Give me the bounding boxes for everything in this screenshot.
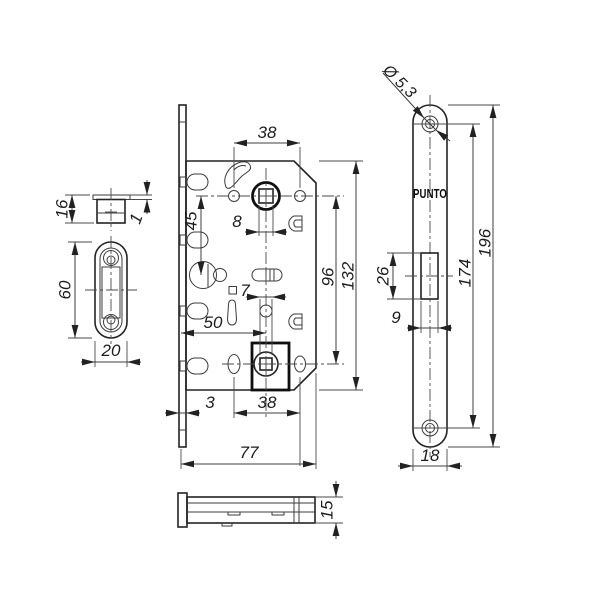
staple-tab-bottom bbox=[289, 314, 302, 329]
dim-label-8: 8 bbox=[232, 212, 242, 231]
dim-backset: 50 bbox=[181, 313, 266, 333]
dim-top-hole-span: 38 bbox=[234, 123, 300, 188]
dim-label-18: 18 bbox=[421, 446, 440, 465]
dim-label-60: 60 bbox=[55, 280, 74, 299]
dim-label-38-top: 38 bbox=[258, 123, 277, 142]
dim-label-45: 45 bbox=[181, 211, 200, 230]
dim-label-174: 174 bbox=[455, 259, 474, 287]
dim-label-15: 15 bbox=[317, 500, 336, 519]
dim-faceplate-standoff: 3 bbox=[165, 393, 215, 413]
technical-drawing-canvas: 16 1 60 20 bbox=[0, 0, 600, 600]
case-left-tabs bbox=[180, 174, 208, 374]
square-symbol-icon bbox=[229, 287, 237, 295]
small-round-hole bbox=[214, 269, 227, 282]
technical-drawing-page: 16 1 60 20 bbox=[0, 0, 600, 600]
dim-strike-box-flange: 1 bbox=[125, 180, 152, 226]
dim-label-38-bottom: 38 bbox=[258, 393, 277, 412]
dim-label-7: 7 bbox=[240, 281, 250, 300]
dim-screw-hole-dia: Ø 5,3 bbox=[379, 61, 450, 141]
dim-label-132: 132 bbox=[338, 261, 357, 290]
dim-label-50: 50 bbox=[204, 313, 223, 332]
strike-box-side-view: 16 1 bbox=[52, 180, 152, 231]
faceplate-front-view: PUNTO Ø 5,3 26 9 174 bbox=[373, 61, 500, 471]
dim-label-77: 77 bbox=[240, 443, 259, 462]
spring-lever-shape bbox=[225, 162, 251, 189]
lock-body-front-view: 38 45 8 7 50 96 bbox=[165, 105, 363, 469]
dim-label-1: 1 bbox=[125, 211, 146, 226]
side-view-body bbox=[187, 497, 315, 523]
dim-hub-square: 8 bbox=[232, 205, 287, 236]
dim-hub-span: 96 bbox=[318, 196, 337, 364]
dim-label-96: 96 bbox=[318, 267, 337, 286]
dim-case-thickness: 15 bbox=[316, 481, 343, 539]
staple-tab-top bbox=[289, 216, 302, 231]
dim-label-3: 3 bbox=[205, 393, 215, 412]
wc-block bbox=[252, 343, 289, 390]
dim-strike-box-height: 16 bbox=[52, 195, 94, 223]
side-view-faceplate-end bbox=[178, 493, 187, 527]
dim-label-9: 9 bbox=[391, 308, 401, 327]
dim-label-20: 20 bbox=[101, 341, 121, 360]
dim-label-16: 16 bbox=[52, 199, 71, 218]
dim-screw-span: 174 bbox=[455, 124, 474, 428]
strike-plate-front-view: 60 20 bbox=[55, 236, 141, 367]
brand-logo: PUNTO bbox=[413, 186, 447, 201]
dim-faceplate-width: 18 bbox=[398, 446, 462, 471]
spring-slot bbox=[252, 269, 282, 281]
dim-latch-cutout-width: 9 bbox=[391, 301, 452, 333]
cylinder-hole bbox=[190, 262, 217, 289]
dim-label-196: 196 bbox=[475, 228, 494, 257]
narrow-slot bbox=[228, 300, 237, 325]
lock-side-view: 15 bbox=[178, 481, 343, 539]
dim-strike-plate-width: 20 bbox=[81, 341, 141, 367]
dim-label-dia-53: Ø 5,3 bbox=[379, 61, 419, 101]
dim-label-26: 26 bbox=[373, 266, 392, 286]
faceplate-edge-strip bbox=[179, 105, 186, 447]
